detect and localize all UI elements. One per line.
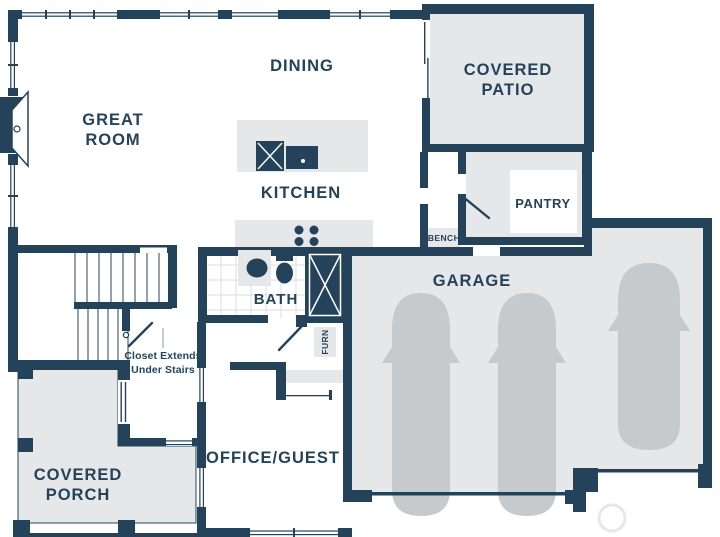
toilet [276, 263, 293, 284]
room-label-office-guest: OFFICE/GUEST [206, 448, 340, 468]
car-silhouette [382, 293, 460, 516]
room-label-covered-patio: COVERED PATIO [464, 60, 553, 100]
room-label-great-room: GREAT ROOM [82, 110, 144, 150]
floor-plan-drawing [0, 0, 720, 537]
room-label-kitchen: KITCHEN [261, 183, 341, 203]
stoop-marker [599, 505, 625, 531]
toilet-tank [276, 252, 293, 261]
area-fills [18, 14, 703, 523]
closet-rod [286, 395, 330, 396]
room-label-covered-porch: COVERED PORCH [34, 465, 123, 505]
dishwasher [286, 146, 318, 169]
car-silhouette [608, 263, 690, 450]
room-label-garage: GARAGE [433, 271, 511, 291]
closet-note: Closet Extends Under Stairs [124, 349, 201, 377]
room-label-pantry: PANTRY [515, 196, 571, 212]
office-closet-shelf [286, 370, 345, 383]
bath-sink [247, 259, 268, 278]
under-stair-closet-door [129, 323, 152, 346]
car-silhouettes [382, 263, 690, 516]
floor-plan: GREAT ROOM DINING KITCHEN COVERED PATIO … [0, 0, 720, 537]
feature-label-furnace: FURN [320, 329, 330, 354]
kitchen-counter [235, 220, 373, 247]
car-silhouette [488, 293, 566, 516]
bath-hall-door [279, 326, 302, 350]
room-label-dining: DINING [270, 56, 334, 76]
feature-label-bench: BENCH [428, 233, 460, 243]
room-label-bath: BATH [254, 291, 299, 309]
office-closet [286, 390, 332, 400]
